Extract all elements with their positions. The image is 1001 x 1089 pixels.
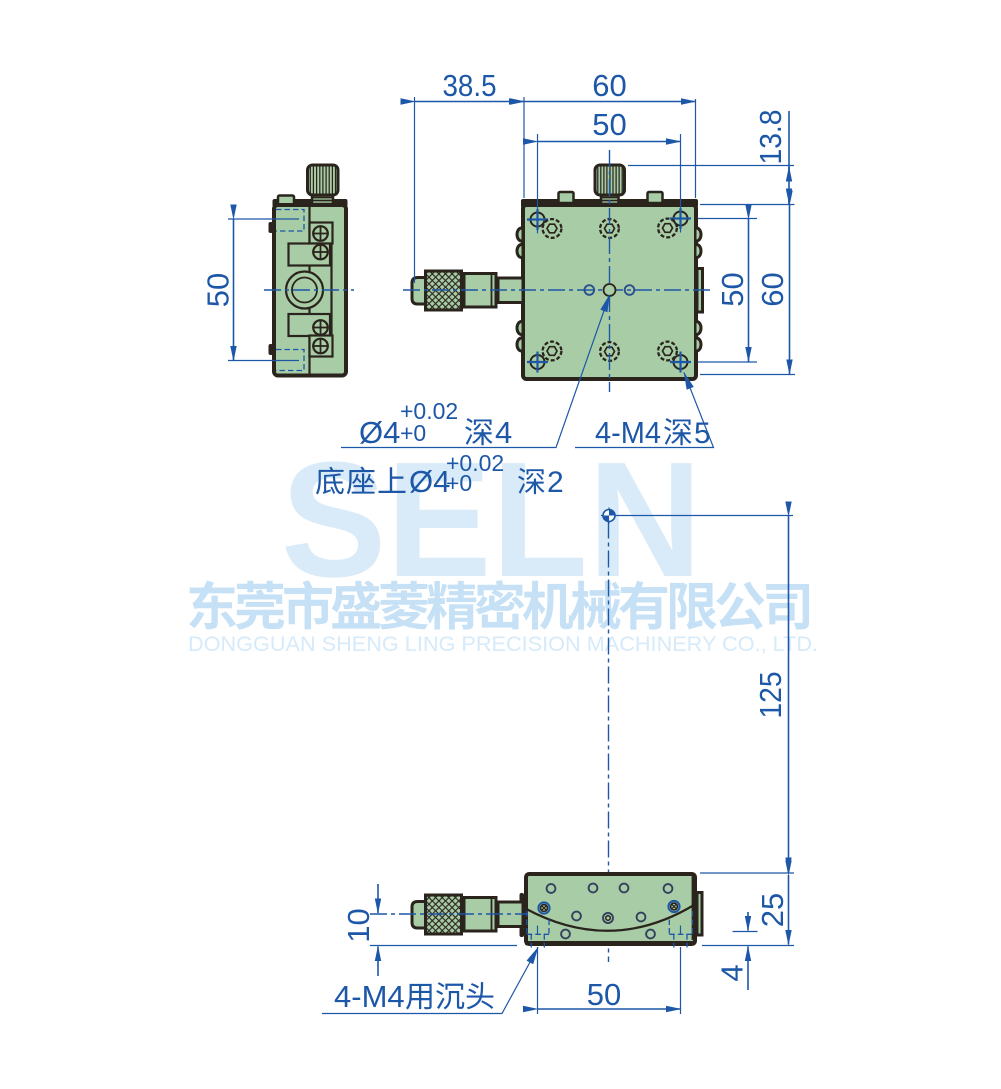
svg-text:50: 50 <box>587 977 621 1012</box>
svg-text:50: 50 <box>715 272 750 306</box>
svg-text:Ø4: Ø4 <box>409 464 450 499</box>
svg-text:60: 60 <box>592 68 626 103</box>
svg-text:50: 50 <box>201 273 236 307</box>
svg-text:+0: +0 <box>446 470 472 496</box>
svg-text:13.8: 13.8 <box>753 110 788 165</box>
svg-text:DONGGUAN SHENG LING PRECISION: DONGGUAN SHENG LING PRECISION MACHINERY … <box>188 632 818 656</box>
svg-text:4: 4 <box>495 415 512 450</box>
svg-text:38.5: 38.5 <box>443 68 497 103</box>
svg-text:4: 4 <box>715 964 750 981</box>
svg-text:+0: +0 <box>400 420 426 446</box>
svg-text:4-M4: 4-M4 <box>595 415 661 450</box>
svg-text:Ø4: Ø4 <box>359 415 400 450</box>
svg-text:10: 10 <box>341 908 376 942</box>
svg-text:25: 25 <box>755 893 790 927</box>
svg-text:125: 125 <box>753 672 788 719</box>
svg-text:4-M4: 4-M4 <box>334 979 405 1014</box>
svg-text:50: 50 <box>592 107 626 142</box>
svg-text:2: 2 <box>547 466 564 499</box>
svg-text:60: 60 <box>755 272 790 306</box>
